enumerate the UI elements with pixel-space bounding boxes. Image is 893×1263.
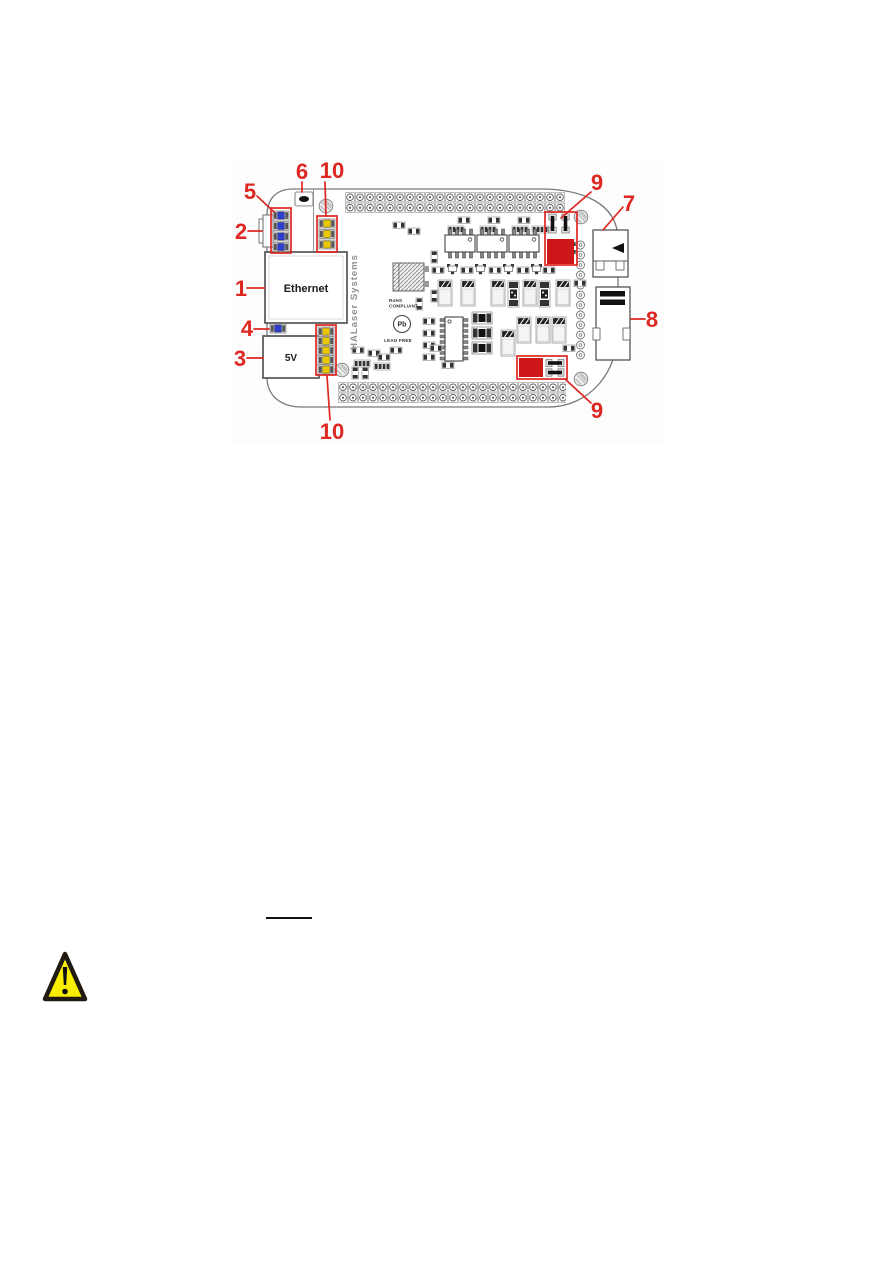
callout-10-top: 10 bbox=[320, 158, 344, 183]
callout-9-bottom: 9 bbox=[591, 398, 603, 423]
top-pin-header bbox=[345, 192, 565, 213]
ethernet-label: Ethernet bbox=[284, 283, 329, 295]
manual-page: Ethernet 5V bbox=[0, 0, 893, 1263]
callout-5: 5 bbox=[244, 179, 256, 204]
top-right-connector bbox=[593, 230, 628, 277]
callout-1: 1 bbox=[235, 276, 247, 301]
reset-button bbox=[295, 192, 313, 206]
crystal-component bbox=[393, 263, 429, 291]
mounting-hole bbox=[335, 363, 349, 377]
callout-6: 6 bbox=[296, 159, 308, 184]
status-leds bbox=[271, 208, 291, 253]
callout-9-top: 9 bbox=[591, 170, 603, 195]
right-side-connector bbox=[593, 287, 630, 360]
underline-rule bbox=[266, 917, 312, 919]
power-label: 5V bbox=[285, 353, 298, 364]
svg-text:COMPLIANT: COMPLIANT bbox=[389, 304, 418, 309]
exclamation-dot bbox=[62, 989, 68, 995]
warning-icon bbox=[42, 950, 88, 1004]
bottom-pin-header bbox=[338, 382, 566, 403]
svg-text:LEAD FREE: LEAD FREE bbox=[384, 338, 412, 343]
brand-text: HALaser Systems bbox=[349, 254, 360, 350]
board-diagram: Ethernet 5V bbox=[228, 156, 674, 448]
callout-10-bottom: 10 bbox=[320, 419, 344, 444]
io-connector-top bbox=[317, 216, 337, 252]
board-figure: Ethernet 5V bbox=[228, 156, 674, 448]
callout-7: 7 bbox=[623, 191, 635, 216]
callout-3: 3 bbox=[234, 346, 246, 371]
callout-4: 4 bbox=[241, 316, 254, 341]
io-connector-bottom bbox=[316, 325, 336, 375]
power-led bbox=[270, 324, 286, 333]
svg-text:Pb: Pb bbox=[398, 322, 407, 329]
callout-8: 8 bbox=[646, 307, 658, 332]
mounting-hole bbox=[574, 372, 588, 386]
power-jack: 5V bbox=[263, 336, 319, 378]
ethernet-port: Ethernet bbox=[265, 252, 347, 323]
callout-2: 2 bbox=[235, 219, 247, 244]
svg-text:RoHS: RoHS bbox=[389, 298, 402, 303]
